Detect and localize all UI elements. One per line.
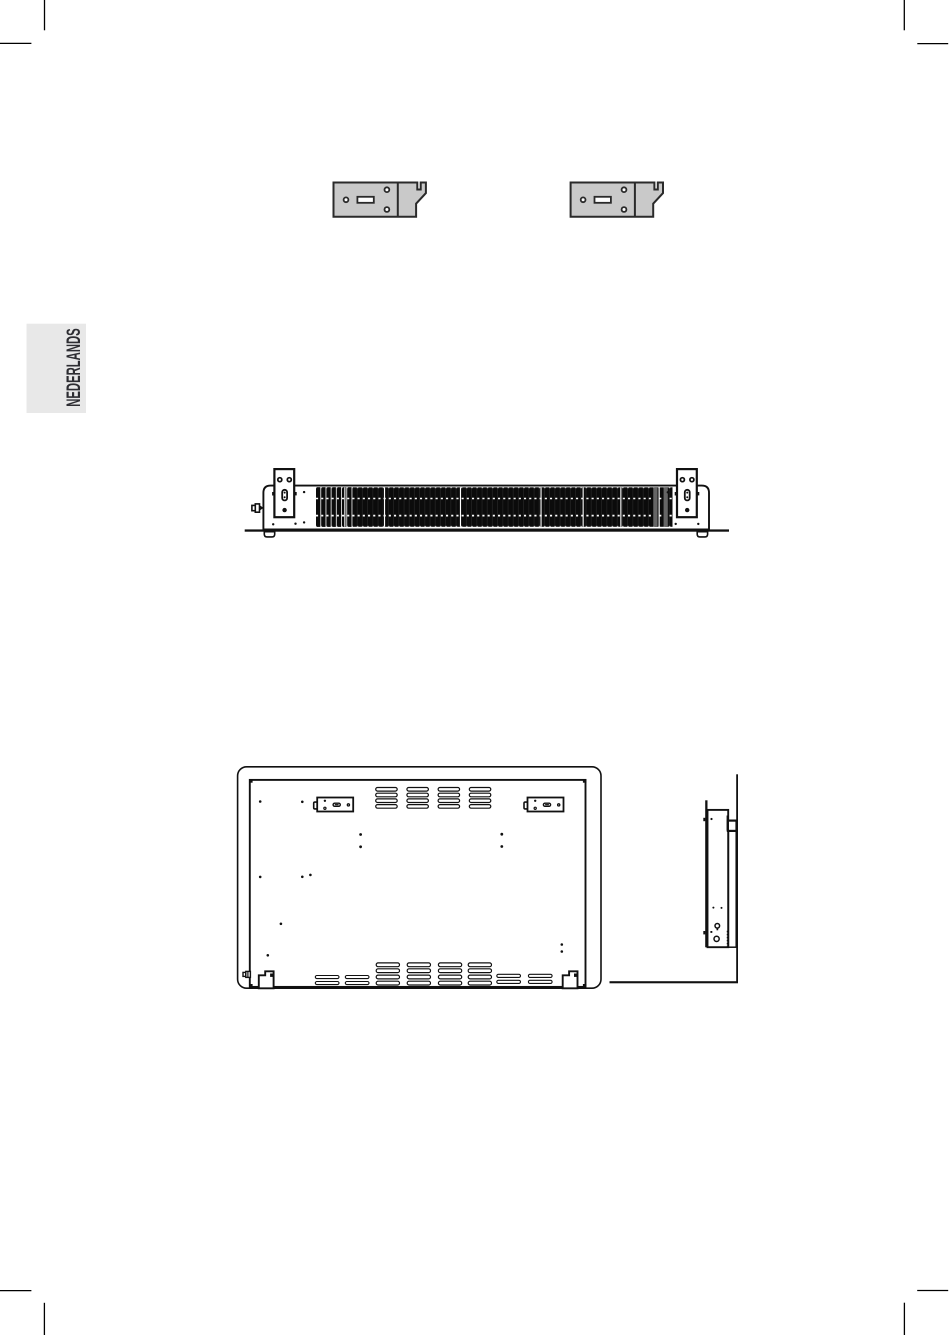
svg-text:NEDERLANDS: NEDERLANDS: [63, 328, 85, 407]
